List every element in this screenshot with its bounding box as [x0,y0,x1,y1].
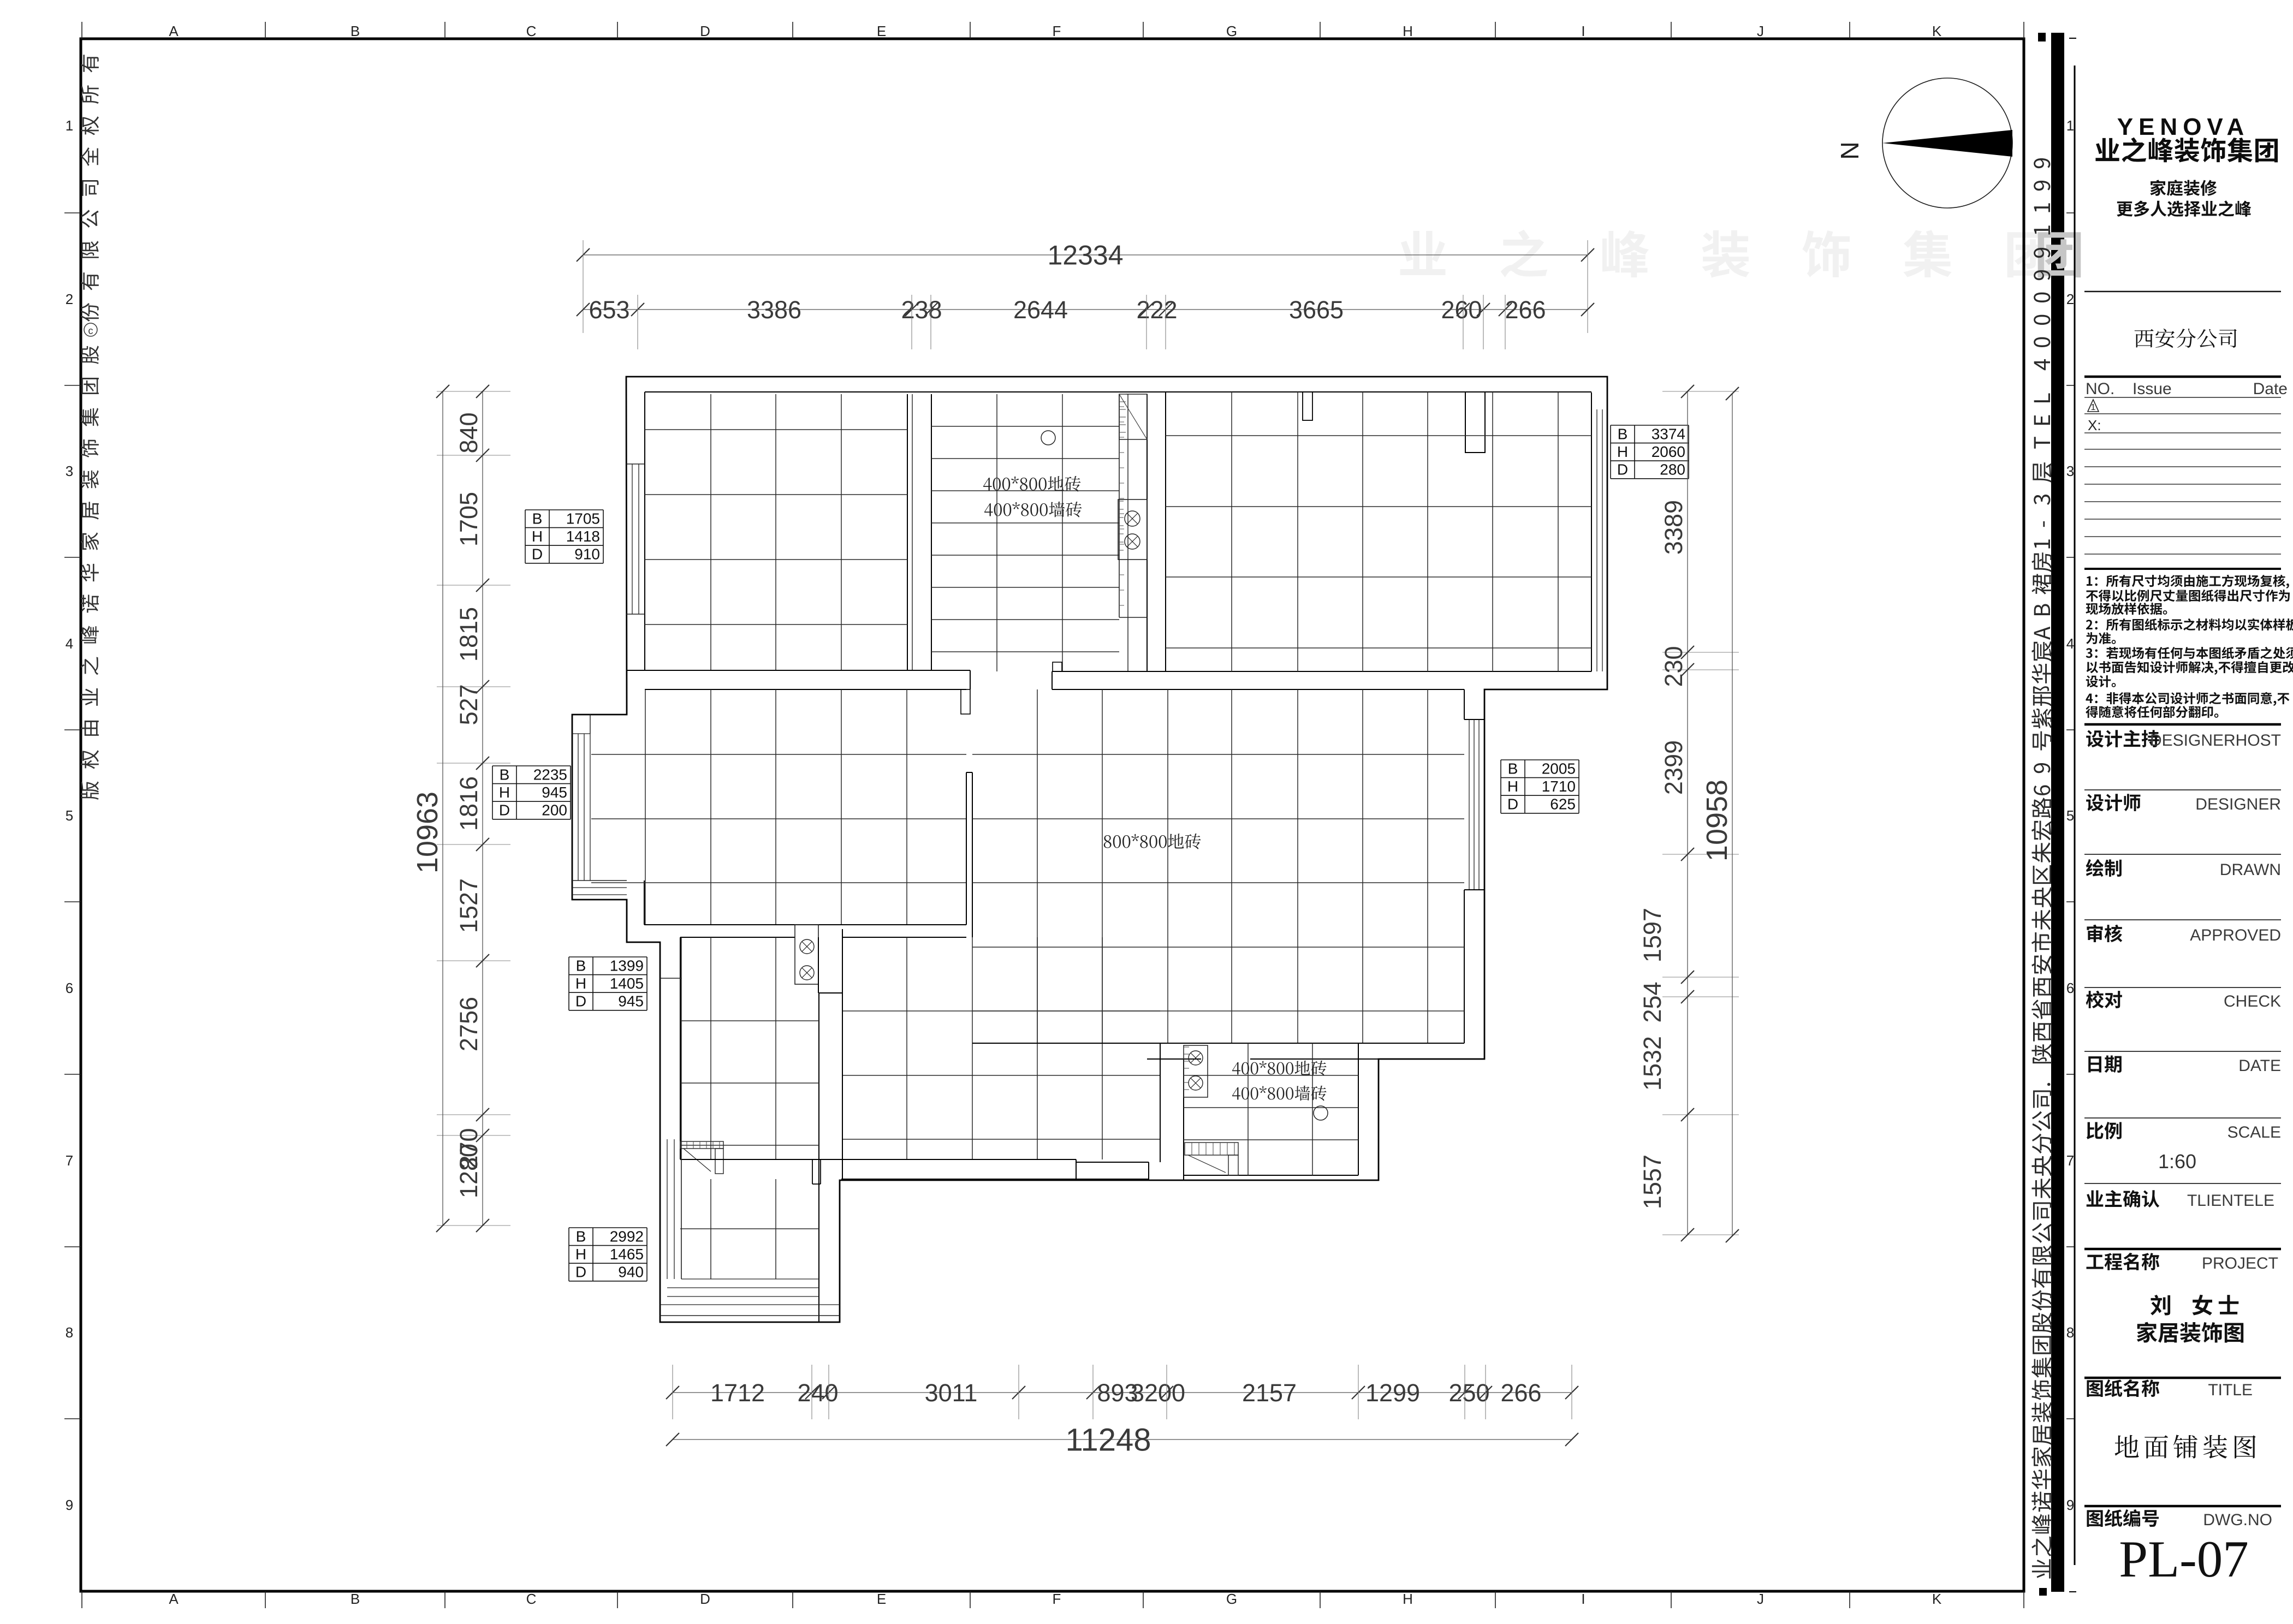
svg-text:2644: 2644 [1013,296,1068,324]
svg-text:1: 1 [2091,403,2096,412]
svg-text:5: 5 [2066,807,2074,824]
svg-text:Date: Date [2253,380,2288,398]
svg-text:B: B [1618,425,1628,442]
svg-text:4: 4 [2066,635,2074,652]
svg-text:3: 3 [2066,463,2074,479]
svg-text:840: 840 [455,412,483,453]
svg-text:H: H [1507,778,1518,795]
svg-text:250: 250 [1448,1379,1489,1407]
svg-text:DESIGNERHOST: DESIGNERHOST [2150,731,2281,749]
svg-text:D: D [1617,461,1628,478]
svg-text:238: 238 [901,296,942,324]
svg-text:1816: 1816 [455,776,483,831]
svg-text:F: F [1053,23,1061,39]
svg-text:280: 280 [1660,461,1685,478]
svg-text:2: 2 [2066,291,2074,307]
svg-text:222: 222 [1136,296,1177,324]
svg-text:9: 9 [66,1497,73,1513]
svg-text:1: 1 [2066,117,2074,134]
svg-text:1: 1 [66,117,73,134]
svg-text:PL-07: PL-07 [2119,1530,2249,1588]
svg-text:5: 5 [66,807,73,824]
svg-text:C: C [526,1591,537,1607]
svg-text:D: D [575,993,586,1010]
svg-text:10958: 10958 [1701,780,1733,861]
svg-text:3374: 3374 [1652,425,1685,442]
svg-text:I: I [1581,1591,1585,1607]
svg-text:1527: 1527 [455,878,483,933]
svg-text:260: 260 [1441,296,1482,324]
svg-text:G: G [1226,1591,1237,1607]
svg-text:230: 230 [1660,646,1688,687]
svg-text:DRAWN: DRAWN [2220,861,2281,879]
svg-text:J: J [1757,23,1764,39]
svg-text:D: D [700,1591,710,1607]
svg-text:2756: 2756 [455,997,483,1051]
svg-text:DWG.NO: DWG.NO [2203,1511,2272,1529]
svg-text:1597: 1597 [1638,908,1666,962]
svg-text:K: K [1932,1591,1942,1607]
svg-text:527: 527 [455,684,483,725]
svg-text:SCALE: SCALE [2227,1123,2281,1141]
svg-text:B: B [500,766,510,783]
svg-text:1705: 1705 [455,492,483,546]
svg-text:200: 200 [542,802,567,819]
svg-text:CHECK: CHECK [2224,992,2281,1010]
svg-text:D: D [499,802,510,819]
svg-text:4: 4 [66,635,73,652]
svg-text:7: 7 [2066,1152,2074,1169]
svg-text:1405: 1405 [610,975,644,992]
svg-text:1557: 1557 [1638,1155,1666,1209]
svg-text:266: 266 [1500,1379,1541,1407]
svg-text:D: D [1507,796,1518,813]
svg-text:H: H [1403,1591,1413,1607]
svg-text:B: B [576,1228,586,1245]
svg-text:6: 6 [66,980,73,996]
svg-text:B: B [351,1591,360,1607]
svg-text:N: N [1835,141,1864,159]
svg-text:D: D [575,1264,586,1281]
svg-text:2399: 2399 [1660,740,1688,795]
svg-text:X:: X: [2088,417,2101,433]
svg-text:945: 945 [542,784,567,801]
svg-text:E: E [877,1591,886,1607]
svg-text:2005: 2005 [1542,760,1576,777]
svg-text:8: 8 [66,1324,73,1341]
svg-text:240: 240 [797,1379,838,1407]
svg-text:2: 2 [66,291,73,307]
svg-text:B: B [532,510,543,527]
svg-text:254: 254 [1638,981,1666,1022]
svg-text:1280: 1280 [455,1144,483,1198]
svg-text:DESIGNER: DESIGNER [2195,795,2281,813]
svg-text:3389: 3389 [1660,500,1688,555]
svg-text:1712: 1712 [710,1379,765,1407]
svg-text:D: D [700,23,710,39]
svg-text:945: 945 [618,993,644,1010]
svg-text:F: F [1053,1591,1061,1607]
svg-text:TITLE: TITLE [2208,1381,2253,1399]
svg-text:1299: 1299 [1365,1379,1420,1407]
svg-text:2235: 2235 [533,766,567,783]
svg-text:653: 653 [589,296,629,324]
svg-text:A: A [169,1591,179,1607]
svg-text:c: c [88,325,93,336]
svg-text:B: B [1508,760,1518,777]
svg-text:1532: 1532 [1638,1036,1666,1091]
svg-text:1465: 1465 [610,1246,644,1263]
svg-text:3011: 3011 [925,1379,978,1407]
svg-text:12334: 12334 [1047,240,1123,271]
svg-text:1705: 1705 [566,510,600,527]
svg-text:1815: 1815 [455,607,483,662]
svg-text:TLIENTELE: TLIENTELE [2187,1192,2274,1210]
svg-text:B: B [351,23,360,39]
svg-text:3665: 3665 [1289,296,1344,324]
svg-text:K: K [1932,23,1942,39]
svg-text:8: 8 [2066,1324,2074,1341]
svg-text:C: C [526,23,537,39]
svg-text:10963: 10963 [411,792,444,873]
svg-text:H: H [1403,23,1413,39]
svg-text:6: 6 [2066,980,2074,996]
svg-text:APPROVED: APPROVED [2190,926,2281,944]
svg-text:3386: 3386 [747,296,801,324]
svg-text:940: 940 [618,1264,644,1281]
svg-text:1710: 1710 [1542,778,1576,795]
svg-text:H: H [499,784,510,801]
svg-text:G: G [1226,23,1237,39]
svg-text:1418: 1418 [566,528,600,545]
svg-text:H: H [575,975,586,992]
svg-text:Issue: Issue [2132,380,2172,398]
svg-text:YENOVA: YENOVA [2117,114,2250,140]
svg-text:A: A [169,23,179,39]
svg-text:2157: 2157 [1242,1379,1297,1407]
svg-text:PROJECT: PROJECT [2202,1254,2278,1272]
svg-text:11248: 11248 [1066,1422,1151,1458]
svg-text:E: E [877,23,886,39]
svg-text:2992: 2992 [610,1228,644,1245]
svg-text:H: H [532,528,543,545]
svg-text:7: 7 [66,1152,73,1169]
svg-text:625: 625 [1550,796,1576,813]
svg-text:B: B [576,957,586,974]
svg-text:3: 3 [66,463,73,479]
svg-text:1399: 1399 [610,957,644,974]
svg-text:NO.: NO. [2086,380,2114,398]
svg-text:I: I [1581,23,1585,39]
svg-text:H: H [1617,443,1628,460]
svg-text:J: J [1757,1591,1764,1607]
svg-text:910: 910 [574,546,600,563]
svg-text:3200: 3200 [1131,1379,1185,1407]
svg-text:266: 266 [1505,296,1546,324]
svg-text:H: H [575,1246,586,1263]
svg-text:2060: 2060 [1652,443,1685,460]
svg-text:DATE: DATE [2238,1057,2281,1075]
svg-text:1:60: 1:60 [2158,1150,2196,1173]
svg-text:9: 9 [2066,1497,2074,1513]
svg-text:D: D [532,546,543,563]
